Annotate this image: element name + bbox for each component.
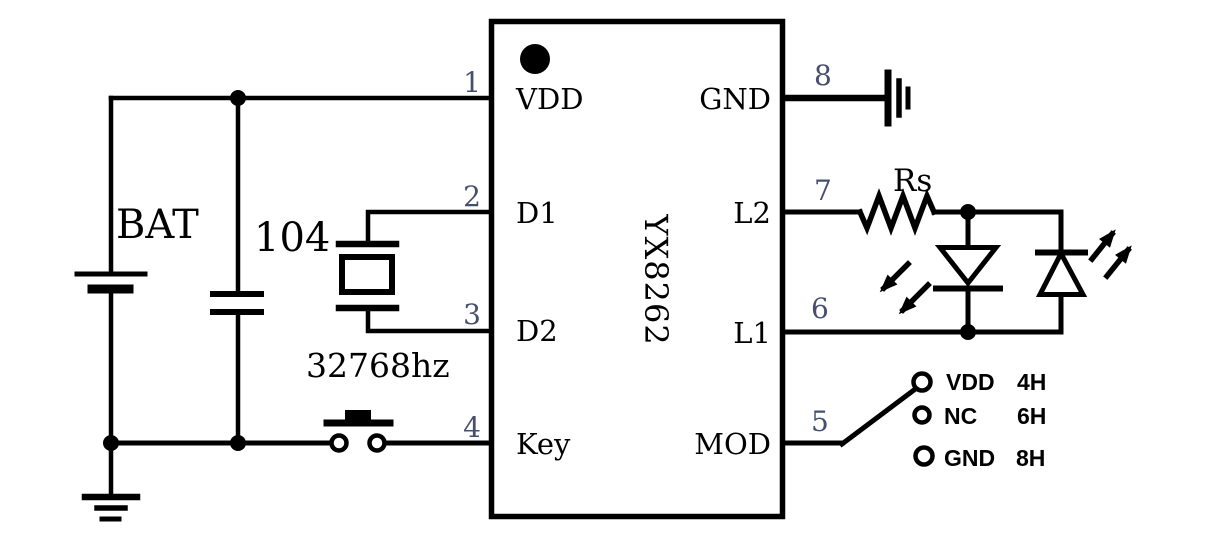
pin-d1-label: D1 <box>516 196 558 230</box>
pin6-number: 6 <box>811 292 829 325</box>
pin7-number: 7 <box>814 174 832 207</box>
led2-emission-arrows <box>1092 234 1128 276</box>
push-button-symbol <box>327 410 390 451</box>
ic-part-label: YX8262 <box>637 213 675 345</box>
ground-symbol-right <box>888 73 908 123</box>
pin-key-label: Key <box>516 427 571 461</box>
left-circuit-wires <box>111 98 489 496</box>
pin5-number: 5 <box>811 405 829 438</box>
pin1-number: 1 <box>463 66 481 99</box>
pin8-number: 8 <box>814 59 832 92</box>
pin-gnd-label: GND <box>699 82 771 116</box>
mod-option-vdd-terminal <box>914 374 931 391</box>
battery-label: BAT <box>116 202 199 248</box>
pin3-number: 3 <box>463 298 481 331</box>
led1-symbol <box>936 248 1000 289</box>
mod-option-nc-mode: 6H <box>1017 403 1046 429</box>
crystal-symbol <box>339 244 396 308</box>
led2-symbol <box>1038 253 1085 295</box>
pin-vdd-label: VDD <box>515 82 583 116</box>
resistor-label: Rs <box>893 163 932 199</box>
pin-l1-label: L1 <box>733 316 771 350</box>
mod-option-nc-label: NC <box>944 403 977 429</box>
led1-emission-arrows <box>884 264 928 310</box>
capacitor-symbol <box>213 294 261 312</box>
ic-pin1-indicator-dot <box>520 44 550 74</box>
circuit-schematic: BAT 104 32768hz YX8262 VDD D1 D2 Key GND… <box>0 0 1209 546</box>
resistor-symbol <box>860 196 934 228</box>
battery-symbol <box>77 274 145 289</box>
ground-symbol-left <box>85 497 137 519</box>
schematic-page: BAT 104 32768hz YX8262 VDD D1 D2 Key GND… <box>0 0 1209 546</box>
pin-mod-label: MOD <box>694 427 771 461</box>
mod-option-labels: VDD 4H NC 6H GND 8H <box>944 369 1046 471</box>
pin-l2-label: L2 <box>733 196 771 230</box>
mod-option-gnd-terminal <box>916 448 933 465</box>
pin2-number: 2 <box>463 180 481 213</box>
mod-option-vdd-label: VDD <box>946 369 995 395</box>
mod-option-vdd-mode: 4H <box>1017 369 1046 395</box>
pin4-number: 4 <box>463 411 481 444</box>
pin-d2-label: D2 <box>516 314 558 348</box>
crystal-label: 32768hz <box>306 346 450 385</box>
mod-option-gnd-mode: 8H <box>1016 445 1045 471</box>
mod-option-gnd-label: GND <box>944 445 995 471</box>
mod-option-nc-terminal <box>915 408 930 423</box>
mod-switch <box>842 374 933 465</box>
capacitor-label: 104 <box>254 215 330 261</box>
